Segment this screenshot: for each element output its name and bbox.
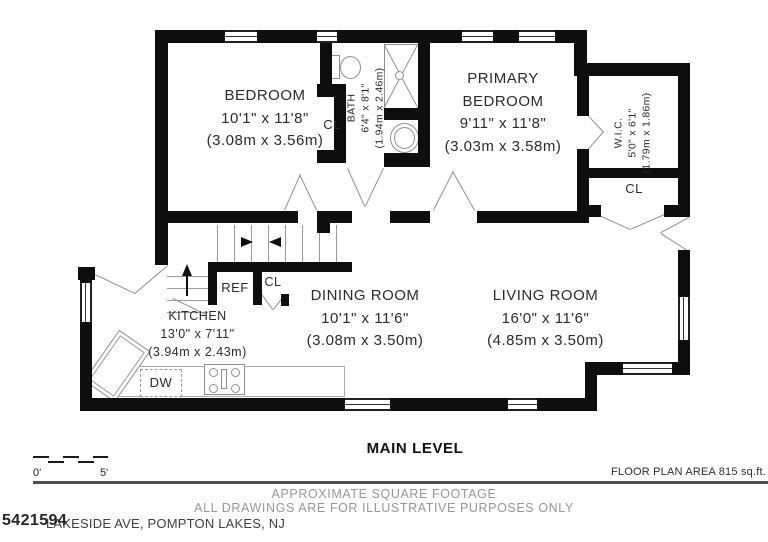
wall (317, 223, 330, 233)
wall (589, 205, 601, 217)
dishwasher-label: DW (145, 375, 177, 390)
closet-label: CL (318, 117, 346, 132)
wall (537, 398, 597, 411)
stove-burner-icon (231, 384, 240, 393)
room-label-bath: BATH 6'4" x 8'1" (1.94m x 2.46m) (345, 53, 388, 163)
disclaimer-line-1: APPROXIMATE SQUARE FOOTAGE (84, 487, 684, 501)
room-dims: 6'4" x 8'1" (359, 53, 373, 163)
window (678, 297, 690, 340)
wall (678, 63, 690, 217)
wall (390, 211, 430, 223)
room-label-kitchen: KITCHEN 13'0" x 7'11" (3.94m x 2.43m) (130, 307, 265, 361)
room-name: PRIMARY (413, 68, 593, 91)
stairs-direction-arrow (269, 237, 281, 247)
window (519, 30, 555, 43)
window (345, 398, 390, 411)
wall (320, 42, 332, 85)
wall (477, 211, 589, 223)
room-dims: 9'11" x 11'8" (413, 113, 593, 136)
wall (678, 250, 690, 297)
room-name: BEDROOM (165, 85, 365, 108)
room-dims: 5'0" x 6'1" (626, 78, 640, 188)
door-swing (284, 174, 301, 210)
watermark-number: 5421594 (2, 512, 67, 530)
stove-center-panel (221, 369, 227, 389)
room-dims-metric: (1.79m x 1.86m) (640, 78, 654, 188)
room-dims: 16'0" x 11'6" (448, 308, 643, 331)
stairs-arrow-stem (186, 276, 188, 296)
door-swing (433, 171, 454, 211)
address-text: LAKESIDE AVE, POMPTON LAKES, NJ (46, 516, 285, 531)
door-swing (452, 171, 475, 211)
door-swing (660, 233, 688, 252)
room-dims: 10'1" x 11'6" (265, 308, 465, 331)
wall (80, 267, 92, 283)
scale-bar (33, 456, 108, 464)
scale-bar-segment (78, 461, 94, 463)
wall (664, 205, 690, 217)
room-dims-metric: (3.94m x 2.43m) (130, 343, 265, 361)
window (80, 283, 92, 322)
floor-plan-area-note: FLOOR PLAN AREA 815 sq.ft. (560, 466, 766, 478)
room-dims-metric: (3.08m x 3.56m) (165, 130, 365, 153)
room-name: BATH (345, 53, 359, 163)
room-dims-metric: (4.85m x 3.50m) (448, 330, 643, 353)
scale-bar-segment (63, 456, 79, 458)
door-swing (347, 168, 365, 207)
room-label-living-room: LIVING ROOM 16'0" x 11'6" (4.85m x 3.50m… (448, 285, 643, 353)
scale-bar-segment (33, 456, 49, 458)
toilet-tank-icon (331, 55, 340, 79)
room-dims: 13'0" x 7'11" (130, 325, 265, 343)
window (623, 362, 672, 375)
wall (672, 362, 690, 375)
stove-burner-icon (231, 368, 240, 377)
room-name: BEDROOM (413, 91, 593, 114)
closet-label: CL (259, 275, 287, 289)
scale-five-label: 5' (100, 467, 108, 479)
wall (493, 30, 519, 43)
stairs-direction-arrow (241, 237, 253, 247)
wall (80, 398, 345, 411)
scale-zero-label: 0' (33, 467, 41, 479)
wall (155, 211, 298, 223)
footer-divider-line (33, 481, 768, 484)
stairs-up-arrow (182, 264, 192, 276)
stove-burner-icon (209, 368, 218, 377)
room-label-primary-bedroom: PRIMARY BEDROOM 9'11" x 11'8" (3.03m x 3… (413, 68, 593, 158)
wall (257, 30, 317, 43)
wall (80, 322, 92, 411)
level-title: MAIN LEVEL (330, 440, 500, 457)
window (317, 30, 337, 43)
room-dims-metric: (3.08m x 3.50m) (265, 330, 465, 353)
disclaimer-line-2: ALL DRAWINGS ARE FOR ILLUSTRATIVE PURPOS… (84, 501, 684, 515)
scale-bar-segment (93, 456, 108, 458)
room-label-wic: W.I.C. 5'0" x 6'1" (1.79m x 1.86m) (612, 78, 655, 188)
room-name: LIVING ROOM (448, 285, 643, 308)
room-dims-metric: (1.94m x 2.46m) (373, 53, 387, 163)
window (508, 398, 537, 411)
door-swing (135, 265, 168, 294)
floor-plan-page: BEDROOM 10'1" x 11'8" (3.08m x 3.56m) BA… (0, 0, 768, 542)
refrigerator-label: REF (215, 280, 255, 295)
room-dims-metric: (3.03m x 3.58m) (413, 136, 593, 159)
door-swing (365, 168, 384, 206)
scale-bar-segment (48, 461, 64, 463)
shower-drain-icon (395, 71, 404, 80)
room-name: DINING ROOM (265, 285, 465, 308)
door-swing (299, 174, 317, 211)
room-label-dining-room: DINING ROOM 10'1" x 11'6" (3.08m x 3.50m… (265, 285, 465, 353)
stove-burner-icon (209, 384, 218, 393)
stairs-upper-run (217, 225, 352, 262)
window (462, 30, 493, 43)
door-swing (660, 217, 689, 233)
door-swing (95, 274, 136, 294)
window (225, 30, 257, 43)
closet-label: CL (620, 181, 648, 196)
bath-sink-basin-icon (394, 127, 415, 149)
wall (390, 398, 508, 411)
room-name: W.I.C. (612, 78, 626, 188)
wall (337, 30, 462, 43)
room-name: KITCHEN (130, 307, 265, 325)
wall (208, 262, 352, 272)
wall (317, 211, 352, 223)
